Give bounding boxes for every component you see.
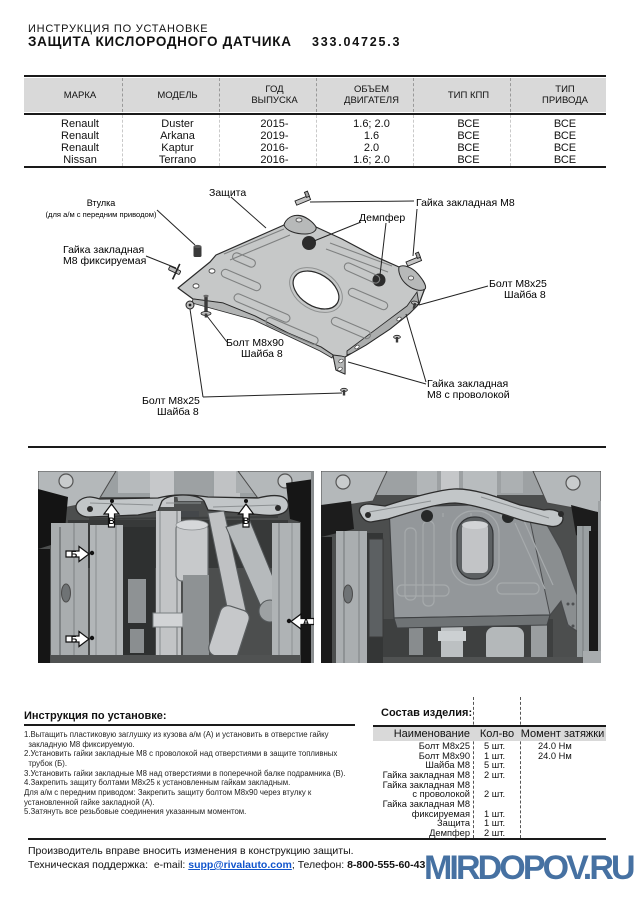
svg-text:Шайба 8: Шайба 8 (504, 289, 546, 301)
svg-text:М8 фиксируемая: М8 фиксируемая (63, 255, 146, 267)
svg-text:М8 с проволокой: М8 с проволокой (427, 389, 510, 401)
svg-text:Гайка закладная М8: Гайка закладная М8 (416, 197, 515, 209)
svg-text:Б: Б (71, 550, 78, 560)
svg-text:Шайба 8: Шайба 8 (241, 348, 283, 360)
svg-text:(для а/м с передним приводом): (для а/м с передним приводом) (46, 210, 157, 219)
svg-text:Втулка: Втулка (87, 198, 116, 208)
svg-text:Демпфер: Демпфер (359, 212, 405, 224)
svg-text:Защита: Защита (209, 187, 246, 199)
svg-text:В: В (243, 516, 250, 526)
svg-text:Шайба 8: Шайба 8 (157, 406, 199, 418)
svg-text:А: А (303, 617, 310, 627)
svg-text:В: В (108, 516, 115, 526)
svg-text:Б: Б (71, 635, 78, 645)
